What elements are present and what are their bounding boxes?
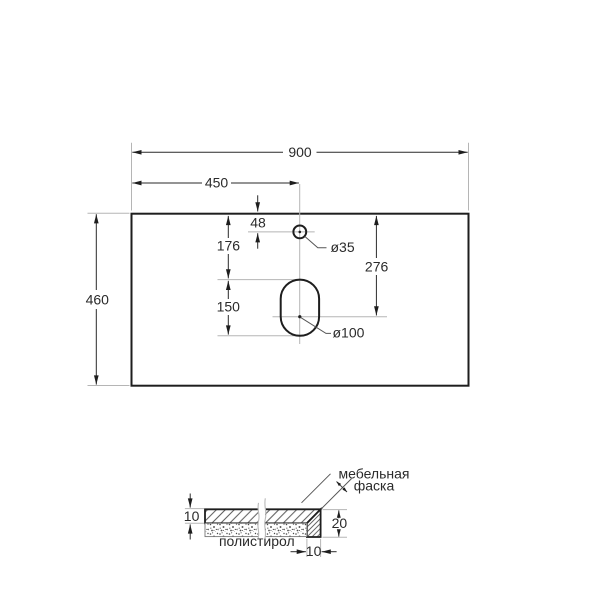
svg-text:450: 450 (205, 175, 229, 191)
svg-text:фаска: фаска (354, 478, 395, 494)
svg-text:полистирол: полистирол (219, 533, 295, 549)
svg-text:150: 150 (217, 299, 241, 315)
svg-text:20: 20 (332, 515, 348, 531)
svg-text:10: 10 (306, 543, 322, 559)
svg-text:48: 48 (250, 215, 266, 231)
svg-text:ø100: ø100 (333, 324, 365, 340)
svg-text:460: 460 (86, 291, 110, 307)
svg-text:276: 276 (365, 259, 389, 275)
svg-text:10: 10 (184, 508, 200, 524)
svg-text:900: 900 (288, 144, 312, 160)
svg-text:ø35: ø35 (331, 239, 355, 255)
svg-text:176: 176 (217, 238, 241, 254)
